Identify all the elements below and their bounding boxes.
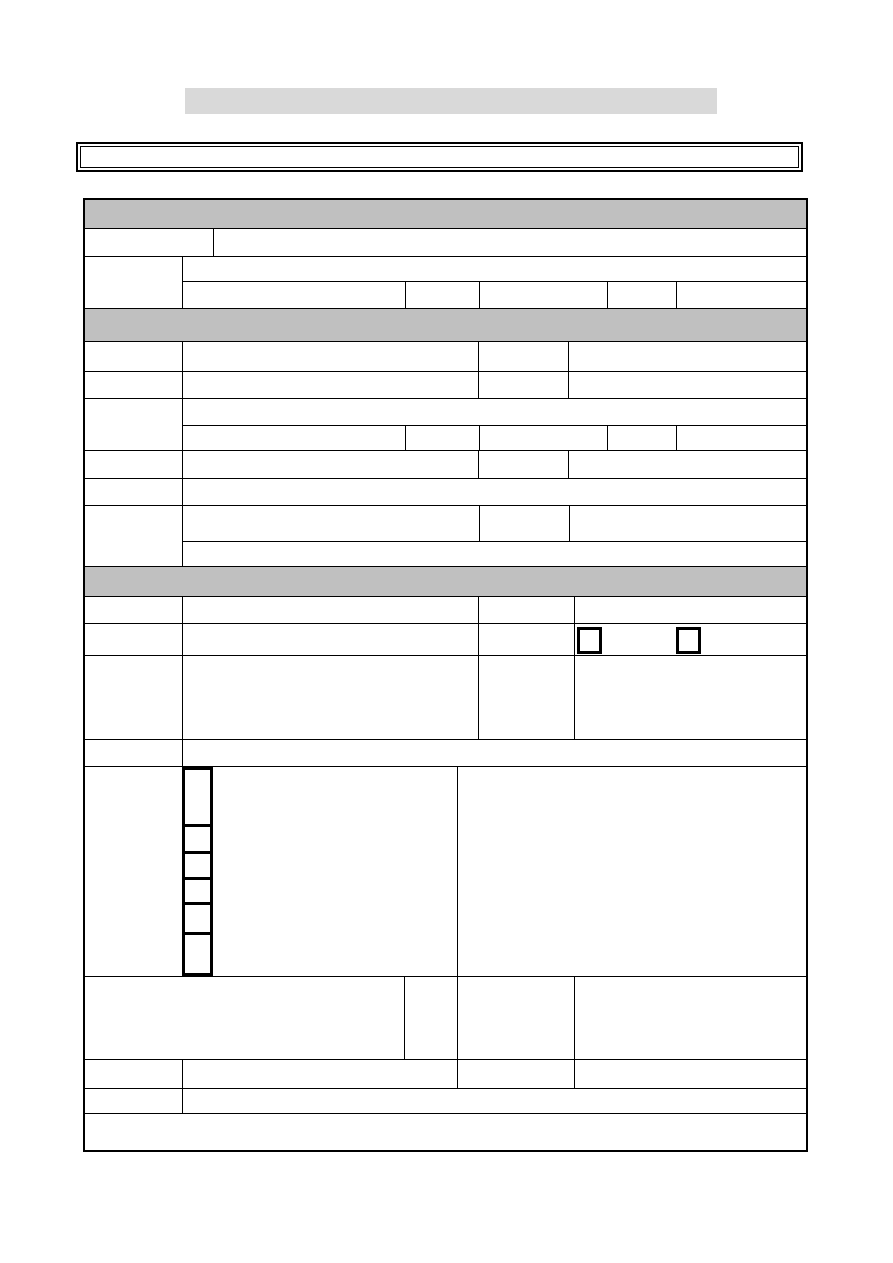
notes-row xyxy=(85,1113,806,1150)
field-row-1 xyxy=(85,228,806,256)
field-label-cell xyxy=(85,399,182,450)
field-subrow xyxy=(183,257,806,281)
field-label-cell xyxy=(85,506,182,566)
field-row-14 xyxy=(85,1088,806,1113)
field-label-cell xyxy=(479,506,569,541)
field-input-cell[interactable] xyxy=(183,426,405,450)
entry-box-6[interactable] xyxy=(185,932,210,959)
field-input-cell[interactable] xyxy=(479,426,607,450)
field-input-cell[interactable] xyxy=(182,342,478,371)
entry-box-column xyxy=(182,767,213,976)
section-3-header-bar xyxy=(85,566,806,596)
entry-box-row xyxy=(85,766,806,976)
field-input-cell[interactable] xyxy=(182,479,806,505)
field-input-cell[interactable] xyxy=(182,451,478,478)
notice-box-inner xyxy=(80,146,799,168)
field-label-cell xyxy=(85,372,182,398)
field-input-cell[interactable] xyxy=(568,451,806,478)
field-subrow xyxy=(183,399,806,425)
field-label-cell xyxy=(85,1089,182,1113)
field-label-cell xyxy=(478,624,574,655)
checkbox-row xyxy=(85,623,806,655)
field-label-cell xyxy=(85,257,182,308)
field-label-cell xyxy=(85,740,182,766)
field-input-cell[interactable] xyxy=(574,656,806,739)
field-input-cell[interactable] xyxy=(182,597,478,623)
field-input-cell[interactable] xyxy=(183,282,405,308)
field-input-cell[interactable] xyxy=(607,426,676,450)
field-input-cell[interactable] xyxy=(85,977,404,1059)
field-input-cell[interactable] xyxy=(569,506,806,541)
section-2-header-bar xyxy=(85,308,806,341)
field-input-cell[interactable] xyxy=(183,506,479,541)
field-input-cell[interactable] xyxy=(405,282,479,308)
field-label-cell xyxy=(404,977,457,1059)
field-input-cell[interactable] xyxy=(182,1089,806,1113)
entry-box-3[interactable] xyxy=(185,851,210,877)
field-label-cell xyxy=(85,1060,182,1088)
entry-box-area xyxy=(182,767,806,976)
field-input-cell[interactable] xyxy=(607,282,676,308)
field-group xyxy=(182,399,806,450)
field-label-cell xyxy=(457,1060,574,1088)
field-input-cell[interactable] xyxy=(568,372,806,398)
field-input-cell[interactable] xyxy=(574,977,806,1059)
field-row-7 xyxy=(85,478,806,505)
field-group xyxy=(182,257,806,308)
field-label-cell xyxy=(478,656,574,739)
field-label-cell xyxy=(478,451,568,478)
field-input-cell[interactable] xyxy=(183,399,806,425)
field-label-cell xyxy=(85,229,213,256)
field-input-cell[interactable] xyxy=(182,740,806,766)
field-subrow xyxy=(183,425,806,450)
field-subrow xyxy=(183,541,806,566)
field-label-cell xyxy=(85,451,182,478)
field-label-cell xyxy=(478,342,568,371)
field-input-cell[interactable] xyxy=(676,282,806,308)
field-row-11 xyxy=(85,739,806,766)
field-row-3 xyxy=(85,341,806,371)
field-input-cell[interactable] xyxy=(183,542,806,566)
field-label-cell xyxy=(85,479,182,505)
field-input-cell[interactable] xyxy=(405,426,479,450)
notes-input-cell[interactable] xyxy=(85,1114,806,1150)
field-row-13 xyxy=(85,1059,806,1088)
field-row-9 xyxy=(85,596,806,623)
field-subrow xyxy=(183,506,806,541)
field-row-4 xyxy=(85,371,806,398)
field-input-cell[interactable] xyxy=(182,372,478,398)
field-row-12 xyxy=(85,976,806,1059)
field-input-cell[interactable] xyxy=(213,229,806,256)
field-label-cell xyxy=(85,342,182,371)
notice-box[interactable] xyxy=(76,142,803,172)
field-group xyxy=(182,506,806,566)
field-input-cell[interactable] xyxy=(182,624,478,655)
column-divider xyxy=(457,767,458,976)
field-input-cell[interactable] xyxy=(676,426,806,450)
entry-box-2[interactable] xyxy=(185,824,210,851)
field-subrow xyxy=(183,281,806,308)
field-row-6 xyxy=(85,450,806,478)
field-input-cell[interactable] xyxy=(574,1060,806,1088)
field-label-cell xyxy=(85,767,182,976)
field-label-cell xyxy=(85,597,182,623)
field-label-cell xyxy=(478,372,568,398)
field-label-cell xyxy=(85,624,182,655)
form-title-bar xyxy=(185,88,717,114)
entry-box-1[interactable] xyxy=(185,770,210,824)
field-input-cell[interactable] xyxy=(182,656,478,739)
field-label-cell xyxy=(478,597,574,623)
checkbox-1[interactable] xyxy=(577,627,602,654)
field-input-cell[interactable] xyxy=(183,257,806,281)
field-input-cell[interactable] xyxy=(182,1060,457,1088)
field-input-cell[interactable] xyxy=(457,977,574,1059)
field-input-cell[interactable] xyxy=(568,342,806,371)
field-input-cell[interactable] xyxy=(479,282,607,308)
field-label-cell xyxy=(85,656,182,739)
field-row-10 xyxy=(85,655,806,739)
field-row-2-group xyxy=(85,256,806,308)
checkbox-2[interactable] xyxy=(676,627,701,654)
section-1-header-bar xyxy=(85,200,806,228)
entry-box-5[interactable] xyxy=(185,902,210,932)
entry-box-4[interactable] xyxy=(185,877,210,902)
checkbox-option-cell xyxy=(574,624,806,655)
field-input-cell[interactable] xyxy=(574,597,806,623)
field-row-5-group xyxy=(85,398,806,450)
form-table xyxy=(83,198,808,1152)
field-row-8-group xyxy=(85,505,806,566)
